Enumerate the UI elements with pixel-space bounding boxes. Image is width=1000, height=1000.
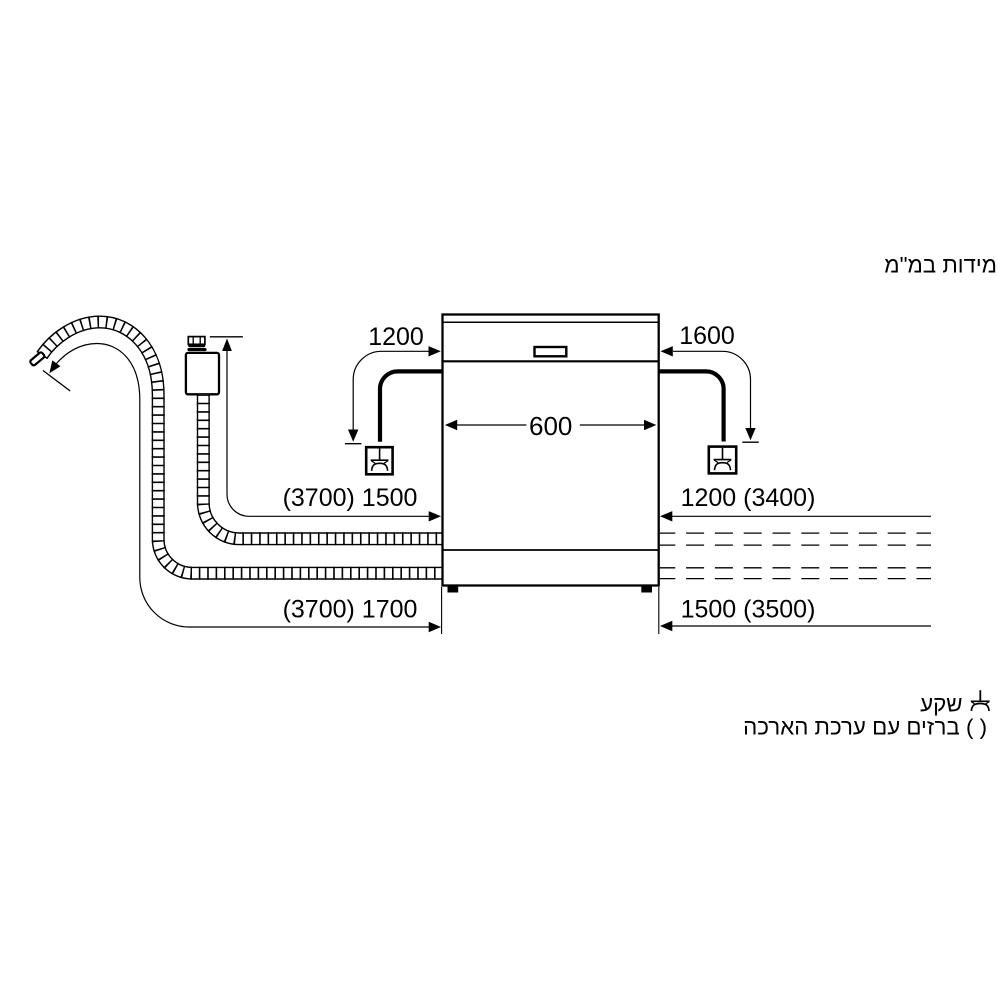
svg-text:ברזים עם ערכת הארכה ( ): ברזים עם ערכת הארכה ( ) [743, 715, 987, 740]
svg-text:(3700) 1700: (3700) 1700 [283, 596, 418, 624]
svg-text:1600: 1600 [679, 322, 735, 350]
svg-text:1200: 1200 [368, 323, 424, 351]
svg-text:600: 600 [529, 411, 572, 441]
svg-text:מידות במ"מ: מידות במ"מ [884, 253, 997, 278]
svg-text:שקע: שקע [920, 691, 962, 716]
svg-text:1200 (3400): 1200 (3400) [681, 484, 816, 512]
svg-text:(3700) 1500: (3700) 1500 [283, 484, 418, 512]
svg-text:1500 (3500): 1500 (3500) [681, 596, 816, 624]
